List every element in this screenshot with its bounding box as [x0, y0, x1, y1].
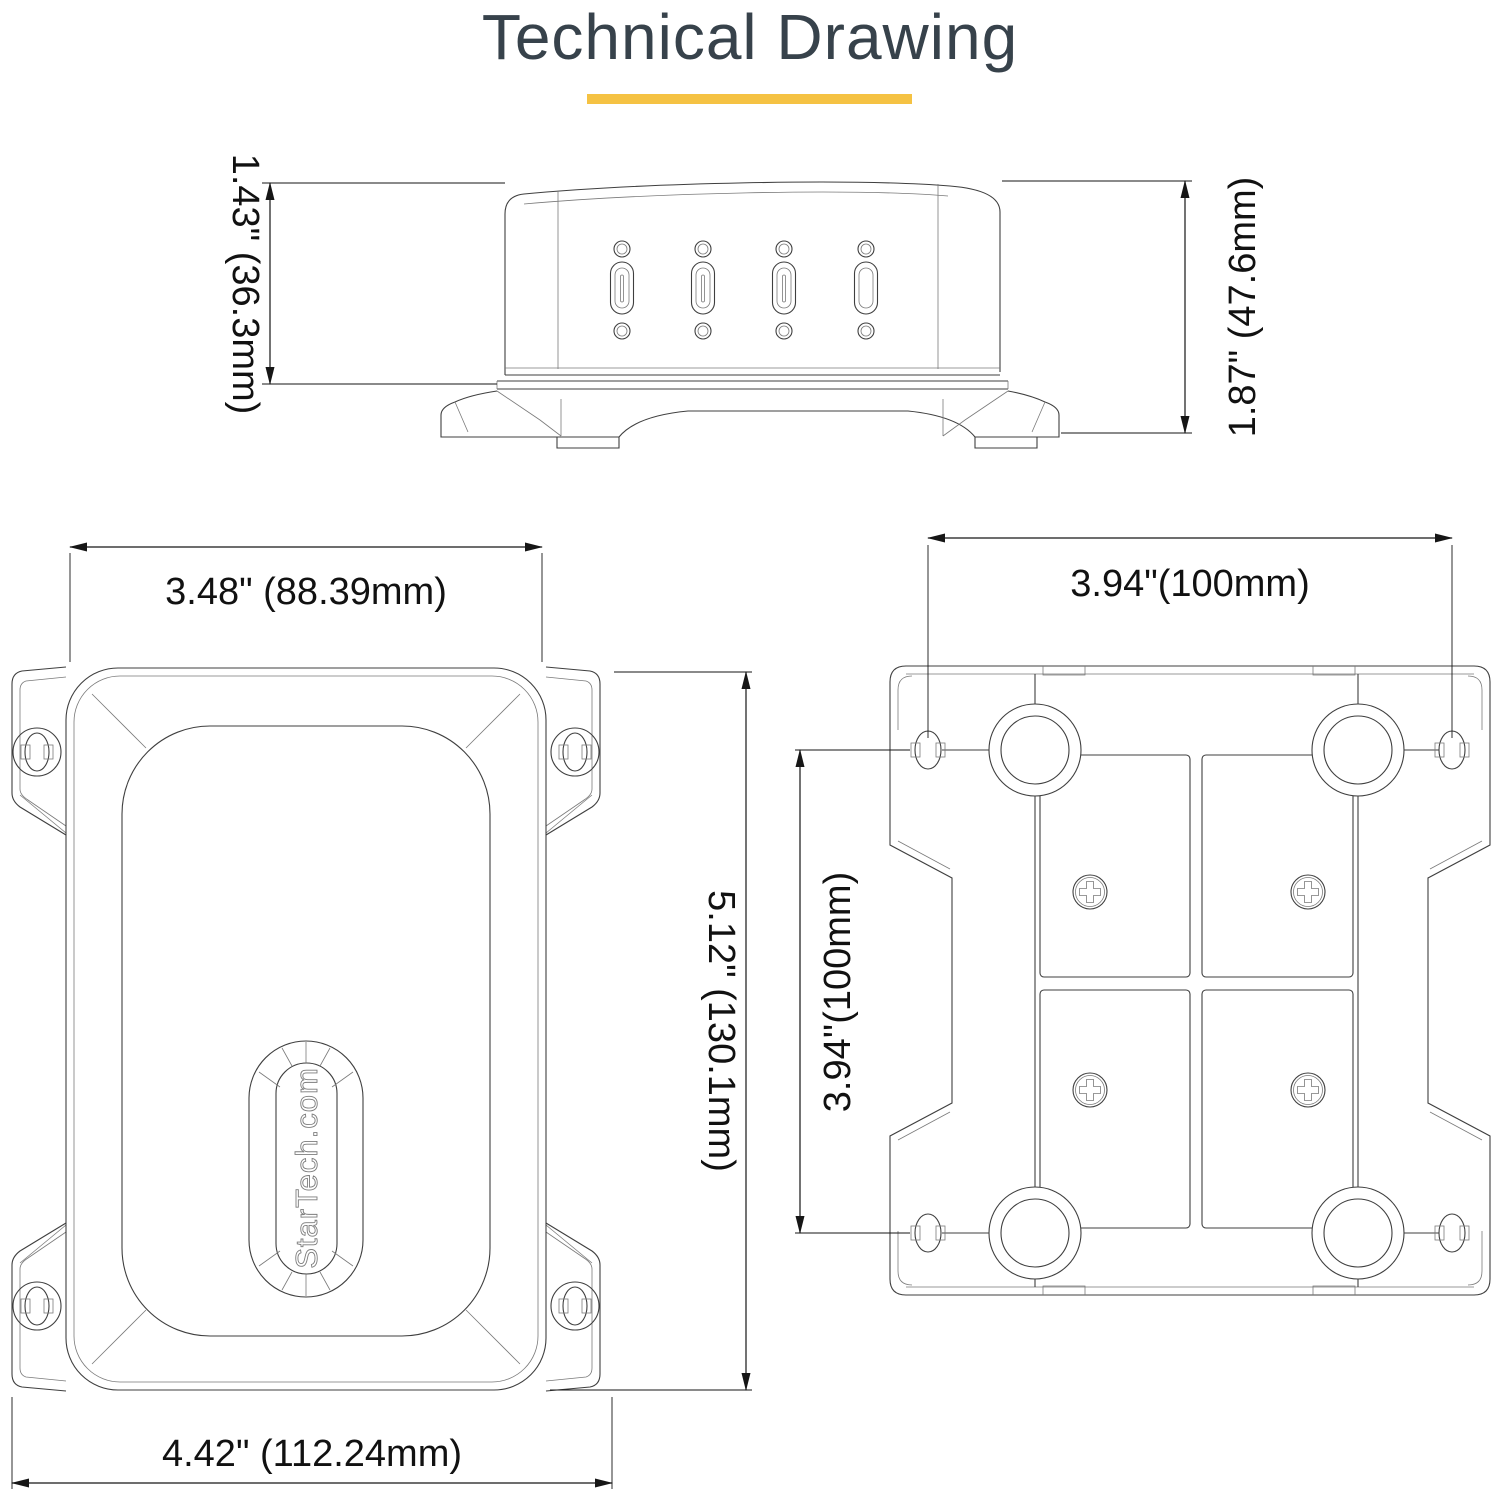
mounting-ear [12, 1223, 66, 1391]
dim-front-width: 3.48" (88.39mm) [70, 547, 542, 662]
ear-slot [911, 1214, 945, 1252]
dim-label-front-total-width: 4.42" (112.24mm) [162, 1433, 462, 1475]
phillips-screw [1291, 875, 1325, 909]
ear-slot [1435, 1214, 1469, 1252]
usb-c-port [855, 241, 878, 339]
dim-side-body-height: 1.43" (36.3mm) [224, 154, 505, 415]
dim-label-side-body-height: 1.43" (36.3mm) [224, 154, 266, 415]
phillips-screw [1291, 1073, 1325, 1107]
mounting-ear [12, 667, 66, 835]
back-panels [1040, 755, 1353, 1228]
dim-label-side-total-height: 1.87" (47.6mm) [1222, 177, 1264, 438]
phillips-screw [1073, 875, 1107, 909]
front-view: StarTech.com [12, 667, 600, 1391]
dim-label-back-hole-spacing-x: 3.94"(100mm) [1070, 563, 1309, 605]
side-view [441, 182, 1059, 448]
phillips-screw [1073, 1073, 1107, 1107]
mounting-ear [546, 667, 600, 835]
vesa-boss [1312, 1187, 1404, 1279]
technical-drawing-canvas: 1.43" (36.3mm) 1.87" (47.6mm) [0, 0, 1500, 1499]
startech-logo-text: StarTech.com [289, 1067, 324, 1269]
dim-label-back-hole-spacing-y: 3.94''(100mm) [817, 872, 859, 1113]
back-view [890, 666, 1490, 1295]
vesa-boss [989, 704, 1081, 796]
vesa-boss [1312, 704, 1404, 796]
usb-c-port [692, 241, 715, 339]
dim-front-total-width: 4.42" (112.24mm) [12, 1397, 612, 1489]
usb-c-port [773, 241, 796, 339]
usb-c-port [611, 241, 634, 339]
dim-back-hole-spacing-y: 3.94''(100mm) [795, 750, 910, 1233]
technical-drawing-page: Technical Drawing [0, 0, 1500, 1499]
dim-side-total-height: 1.87" (47.6mm) [1002, 177, 1264, 438]
dim-label-front-height: 5.12" (130.1mm) [700, 890, 742, 1172]
vesa-boss [989, 1187, 1081, 1279]
dim-label-front-width: 3.48" (88.39mm) [165, 571, 447, 613]
accent-underline [587, 94, 912, 104]
mounting-ear [546, 1223, 600, 1391]
mounting-base [441, 391, 1059, 448]
